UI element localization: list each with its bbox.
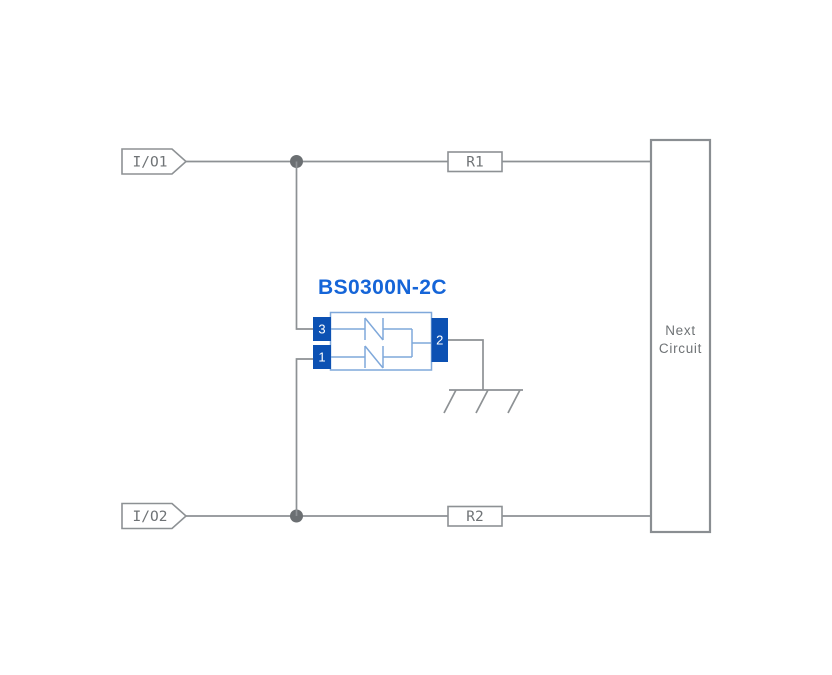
top-signal-row: I/O1 R1 [122,149,651,174]
bottom-signal-row: I/O2 R2 [122,504,651,529]
pin-2-label: 2 [436,333,443,348]
circuit-schematic: I/O1 R1 I/O2 R2 BS0300N-2C [0,0,832,675]
pin-stub-wires [297,162,314,517]
component-body [331,313,432,371]
ground-hatch-2 [476,390,488,413]
tvs-component: BS0300N-2C 3 1 [313,276,448,370]
component-title: BS0300N-2C [318,276,447,299]
next-circuit-label-line1: Next [665,323,696,338]
ground-hatch-1 [444,390,456,413]
wire-pin2-to-ground [448,340,483,390]
io2-label: I/O2 [133,509,168,525]
pin-3-label: 3 [318,322,325,337]
schematic-canvas: I/O1 R1 I/O2 R2 BS0300N-2C [0,0,832,675]
io1-label: I/O1 [133,155,168,171]
wire-junction-to-pin1 [297,359,314,516]
r2-label: R2 [466,509,483,525]
pin-1-label: 1 [318,350,325,365]
ground-symbol [444,340,523,413]
next-circuit-label-line2: Circuit [659,341,702,356]
wire-junction-to-pin3 [297,162,314,330]
ground-hatch-3 [508,390,520,413]
r1-label: R1 [466,155,483,171]
next-circuit-block: Next Circuit [651,140,710,532]
